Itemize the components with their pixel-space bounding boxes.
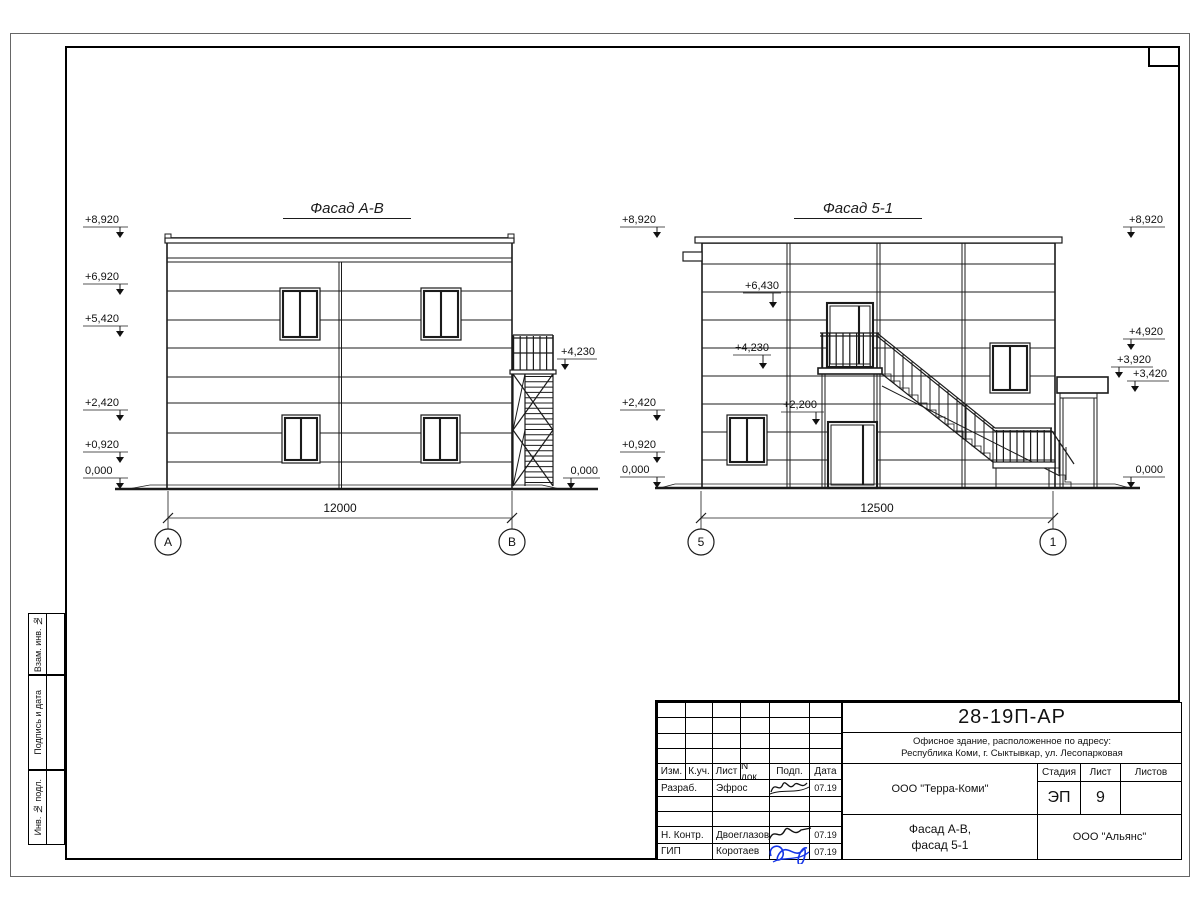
row-name [712, 796, 770, 812]
sheet-number: 9 [1080, 781, 1121, 815]
grid-line [657, 748, 842, 749]
facade-51-drawing: 12500 5 1 +8,920 +2,420 +0,920 0,000 +6,… [615, 195, 1175, 560]
window [727, 415, 767, 465]
contractor-name: ООО "Альянс" [1037, 814, 1182, 860]
dimension-value: 12000 [323, 501, 357, 515]
margin-label: Взам. инв. № [33, 616, 43, 672]
col-header-izm: Изм. [657, 763, 686, 780]
col-header-kuch: К.уч. [685, 763, 713, 780]
elevation-mark-label: +8,920 [1129, 214, 1163, 226]
window [990, 343, 1030, 393]
elevation-mark-label: +0,920 [85, 439, 119, 451]
row-name: Двоеглазов [712, 826, 770, 844]
row-name [712, 811, 770, 827]
signature-nkontr-gip [763, 822, 815, 864]
stage-label: Стадия [1037, 763, 1081, 782]
elevation-marks-right: +4,230 0,000 [557, 346, 600, 489]
sheets-label: Листов [1120, 763, 1182, 782]
sheet-title-line2: фасад 5-1 [909, 837, 971, 853]
axis-bubble-b: В [508, 535, 516, 549]
row-role [657, 796, 713, 812]
row-role [657, 811, 713, 827]
grid-line [657, 733, 842, 734]
object-line1: Офисное здание, расположенное по адресу: [901, 736, 1123, 748]
elevation-marks-left: +8,920 +2,420 +0,920 0,000 [620, 214, 665, 488]
elevation-mark-label: +6,430 [745, 280, 779, 292]
elevation-mark-label: +4,920 [1129, 326, 1163, 338]
elevation-mark-label: +8,920 [622, 214, 656, 226]
margin-box: Инв. № подл. [28, 770, 47, 845]
sheets-total [1120, 781, 1182, 815]
elevation-mark-label: 0,000 [570, 465, 598, 477]
elevation-mark-label: 0,000 [622, 464, 650, 476]
margin-label: Инв. № подл. [33, 779, 43, 835]
fire-escape-stair [510, 335, 556, 486]
facade-ab-drawing: 12000 А В +8,920 +6,920 +5,420 +2,420 +0… [80, 195, 610, 560]
axis-bubble-1: 1 [1050, 535, 1057, 549]
elevation-mark-label: +2,200 [783, 399, 817, 411]
elevation-mark-label: +4,230 [561, 346, 595, 358]
window [280, 288, 320, 340]
dimension-51: 12500 5 1 [688, 491, 1066, 555]
stage-value: ЭП [1037, 781, 1081, 815]
elevation-mark-label: +3,420 [1133, 368, 1167, 380]
elevation-marks-right: +8,920 +4,920 +3,920 +3,420 0,000 [1111, 214, 1169, 488]
sheet-label: Лист [1080, 763, 1121, 782]
row-role: ГИП [657, 843, 713, 860]
sheet-title: Фасад А-В, фасад 5-1 [842, 814, 1038, 860]
document-code: 28-19П-АР [842, 702, 1182, 733]
signature-razrab [767, 777, 812, 799]
annex [1057, 377, 1108, 488]
col-header-ndok: N док. [740, 763, 770, 780]
margin-box [46, 770, 65, 845]
window [421, 288, 461, 340]
drawing-sheet: Фасад А-В Фасад 5-1 [0, 0, 1200, 900]
margin-box: Взам. инв. № [28, 613, 47, 675]
row-role: Н. Контр. [657, 826, 713, 844]
col-header-list: Лист [712, 763, 741, 780]
elevation-mark-label: +6,920 [85, 271, 119, 283]
elevation-mark-label: +2,420 [85, 397, 119, 409]
elevation-mark-label: +4,230 [735, 342, 769, 354]
object-description: Офисное здание, расположенное по адресу:… [842, 732, 1182, 764]
elevation-mark-label: 0,000 [1135, 464, 1163, 476]
dimension-value: 12500 [860, 501, 894, 515]
elevation-mark-label: +3,920 [1117, 354, 1151, 366]
elevation-mark-label: +2,420 [622, 397, 656, 409]
lower-door [828, 422, 877, 488]
title-block: Изм. К.уч. Лист N док. Подп. Дата Разраб… [655, 700, 1180, 858]
margin-box [46, 613, 65, 675]
corner-box [1148, 48, 1180, 67]
axis-bubble-5: 5 [698, 535, 705, 549]
margin-box [46, 675, 65, 770]
grid-line [657, 717, 842, 718]
elevation-mark-label: +0,920 [622, 439, 656, 451]
dimension-ab: 12000 А В [155, 491, 525, 555]
client-name: ООО "Терра-Коми" [842, 763, 1038, 815]
axis-bubble-a: А [164, 535, 172, 549]
window [282, 415, 320, 463]
margin-label: Подпись и дата [33, 690, 43, 755]
facade-ab-walls [165, 234, 514, 489]
elevation-mark-label: +8,920 [85, 214, 119, 226]
window [421, 415, 460, 463]
row-date: 07.19 [809, 779, 842, 797]
sheet-title-line1: Фасад А-В, [909, 821, 971, 837]
margin-box: Подпись и дата [28, 675, 47, 770]
elevation-mark-label: 0,000 [85, 465, 113, 477]
col-header-data: Дата [809, 763, 842, 780]
row-name: Эфрос [712, 779, 770, 797]
row-name: Коротаев [712, 843, 770, 860]
row-date [809, 796, 842, 812]
row-role: Разраб. [657, 779, 713, 797]
elevation-marks-left: +8,920 +6,920 +5,420 +2,420 +0,920 0,000 [83, 214, 128, 489]
object-line2: Республика Коми, г. Сыктывкар, ул. Лесоп… [901, 748, 1123, 760]
elevation-mark-label: +5,420 [85, 313, 119, 325]
